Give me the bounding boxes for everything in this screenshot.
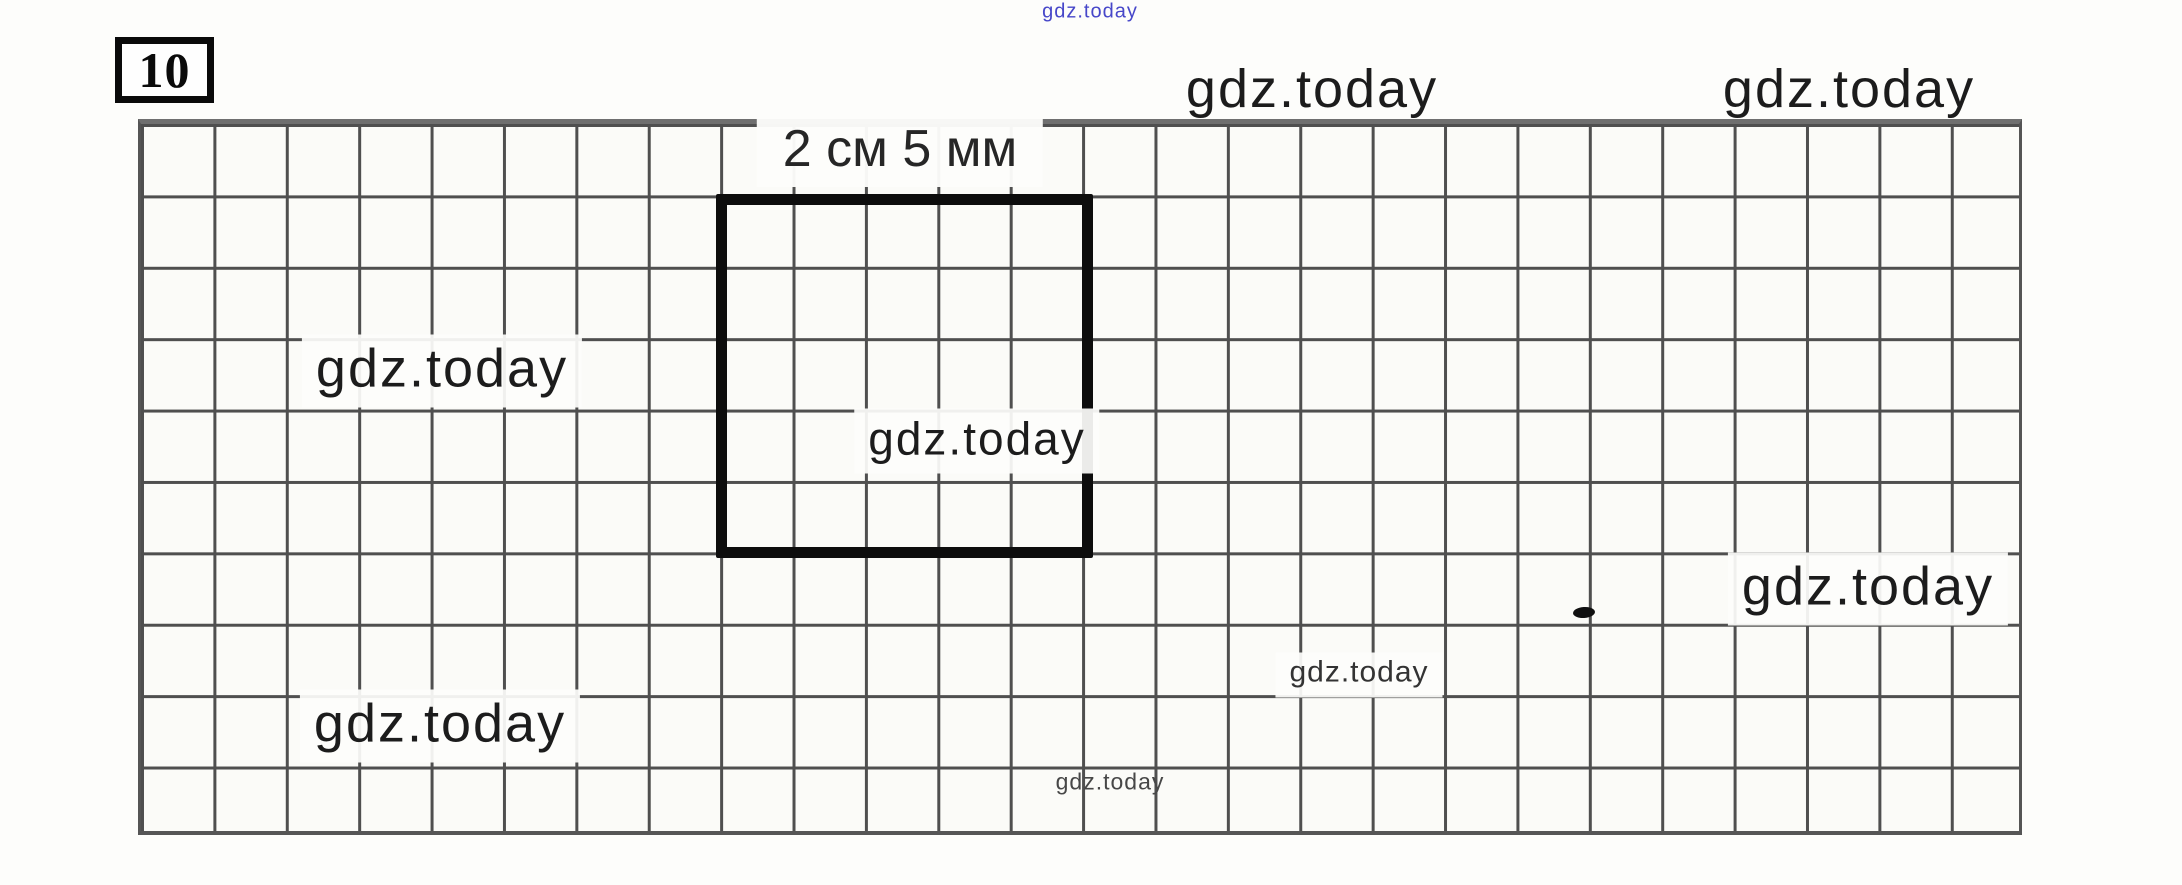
watermark-center: gdz.today: [854, 409, 1099, 474]
watermark-small-right: gdz.today: [1275, 653, 1442, 698]
watermark-bottom-tiny: gdz.today: [1056, 769, 1165, 796]
square-dimension-label: 2 см 5 мм: [757, 115, 1043, 187]
task-number-box: 10: [115, 37, 214, 103]
watermark-left-mid: gdz.today: [302, 335, 582, 408]
watermark-right-mid: gdz.today: [1728, 553, 2008, 626]
watermark-top-tiny: gdz.today: [1042, 1, 1138, 24]
watermark-top-right-2: gdz.today: [1723, 58, 1975, 120]
task-number: 10: [139, 45, 191, 95]
scanned-workbook-page: 10 gdz.today gdz.today gdz.today gdz.tod…: [0, 0, 2182, 885]
watermark-bottom-left: gdz.today: [300, 690, 580, 763]
watermark-top-right-1: gdz.today: [1186, 58, 1438, 120]
drawn-square: [716, 194, 1093, 558]
